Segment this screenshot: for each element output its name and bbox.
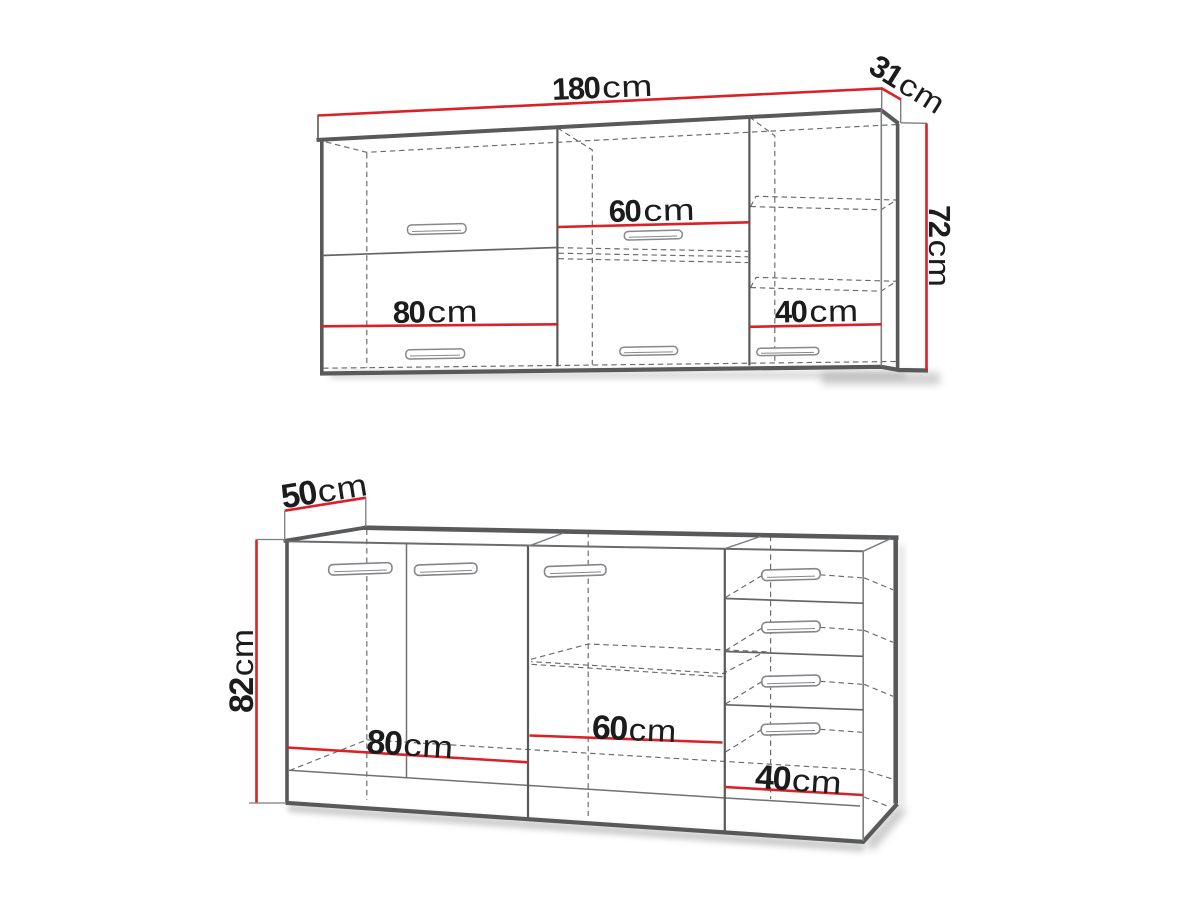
svg-text:cm: cm <box>809 295 859 329</box>
svg-text:40: 40 <box>775 294 807 330</box>
svg-text:cm: cm <box>427 295 478 330</box>
svg-text:cm: cm <box>643 193 696 228</box>
svg-text:80: 80 <box>393 294 425 330</box>
svg-text:cm: cm <box>402 728 454 766</box>
svg-text:cm: cm <box>601 69 653 105</box>
svg-text:40: 40 <box>754 758 792 798</box>
svg-text:cm: cm <box>226 629 261 677</box>
svg-text:180: 180 <box>551 70 600 107</box>
svg-text:cm: cm <box>628 713 678 750</box>
svg-text:cm: cm <box>791 763 844 801</box>
svg-text:82: 82 <box>223 678 261 713</box>
svg-text:60: 60 <box>591 709 628 749</box>
svg-text:60: 60 <box>608 193 641 229</box>
svg-text:cm: cm <box>923 240 957 288</box>
svg-text:80: 80 <box>366 723 404 763</box>
svg-text:72: 72 <box>922 205 957 237</box>
svg-text:50: 50 <box>278 473 319 516</box>
